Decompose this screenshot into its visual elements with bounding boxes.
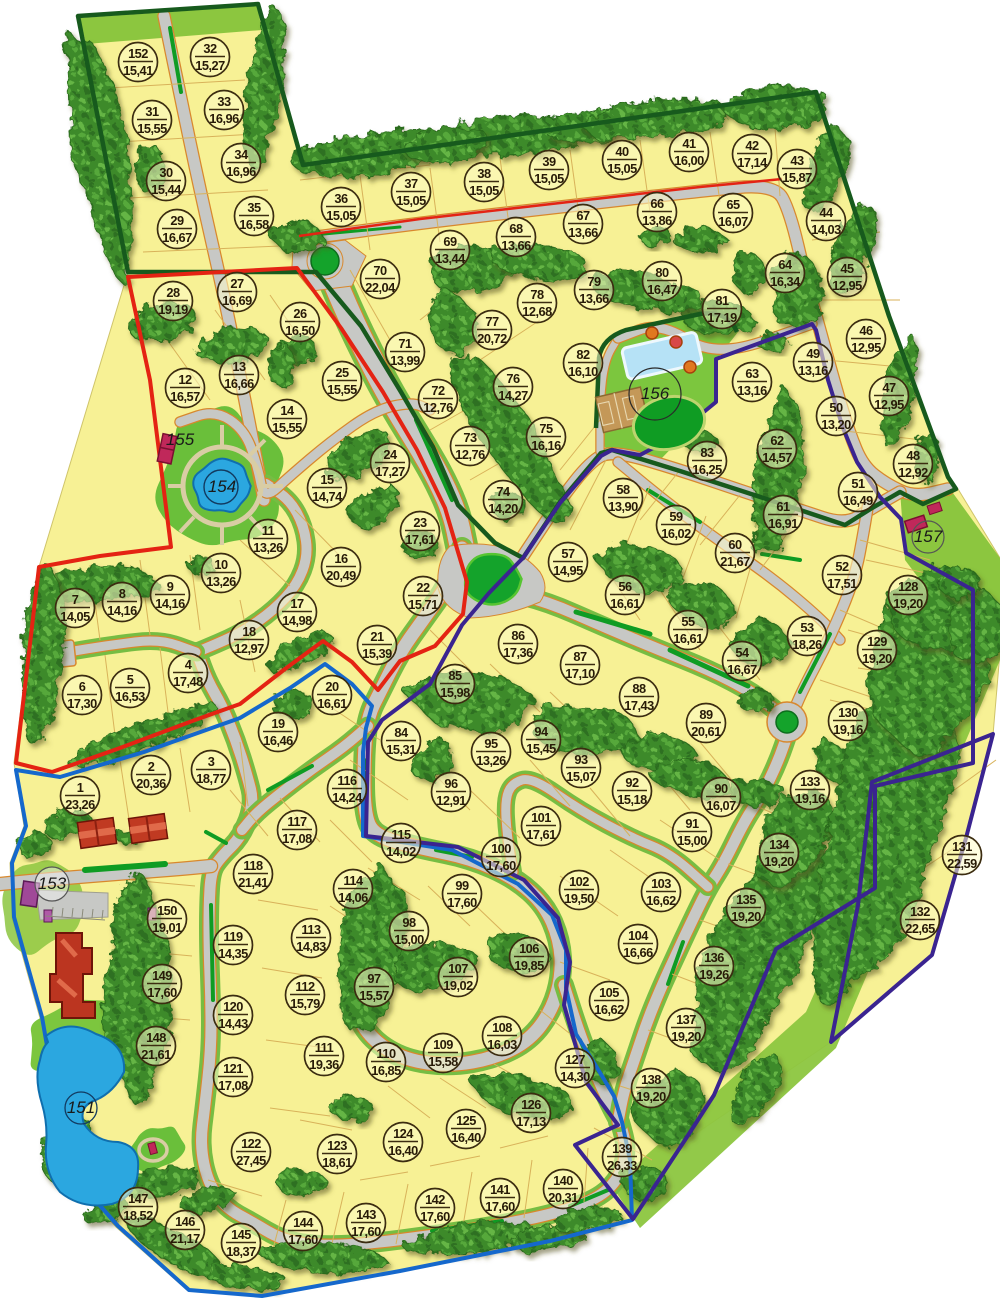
svg-text:22,65: 22,65: [905, 921, 935, 936]
svg-text:145: 145: [231, 1227, 251, 1242]
svg-text:16,61: 16,61: [610, 596, 640, 611]
svg-text:19,20: 19,20: [862, 651, 892, 666]
svg-text:19,50: 19,50: [564, 891, 594, 906]
svg-text:138: 138: [641, 1072, 661, 1087]
svg-text:15,05: 15,05: [534, 171, 564, 186]
svg-text:7: 7: [72, 592, 79, 607]
svg-text:13: 13: [232, 359, 246, 374]
svg-text:33: 33: [217, 94, 231, 109]
svg-text:114: 114: [343, 873, 364, 888]
svg-text:14,20: 14,20: [488, 501, 518, 516]
svg-text:90: 90: [714, 781, 728, 796]
svg-text:91: 91: [685, 816, 699, 831]
svg-text:135: 135: [736, 892, 756, 907]
svg-text:14,05: 14,05: [60, 609, 90, 624]
svg-text:131: 131: [952, 839, 972, 854]
svg-text:80: 80: [655, 265, 669, 280]
svg-text:12,95: 12,95: [874, 397, 904, 412]
svg-text:41: 41: [682, 136, 696, 151]
svg-text:87: 87: [573, 649, 587, 664]
svg-text:89: 89: [699, 707, 713, 722]
svg-text:14,16: 14,16: [107, 603, 137, 618]
svg-text:25: 25: [335, 365, 349, 380]
svg-text:21,17: 21,17: [170, 1231, 200, 1246]
svg-text:37: 37: [404, 176, 418, 191]
svg-text:42: 42: [745, 138, 759, 153]
svg-text:10: 10: [214, 557, 228, 572]
svg-text:6: 6: [79, 679, 86, 694]
svg-text:14,16: 14,16: [155, 596, 185, 611]
svg-text:18,37: 18,37: [226, 1244, 256, 1259]
svg-text:15,44: 15,44: [151, 182, 182, 197]
svg-text:20,49: 20,49: [326, 568, 356, 583]
svg-text:16,91: 16,91: [768, 516, 798, 531]
svg-text:9: 9: [167, 579, 174, 594]
svg-text:15,58: 15,58: [428, 1054, 458, 1069]
svg-text:15,18: 15,18: [617, 792, 647, 807]
svg-text:15,05: 15,05: [396, 193, 426, 208]
svg-text:93: 93: [574, 752, 588, 767]
svg-text:112: 112: [295, 979, 315, 994]
svg-text:26: 26: [293, 306, 307, 321]
svg-text:14,83: 14,83: [296, 939, 326, 954]
svg-text:78: 78: [530, 287, 544, 302]
svg-text:17,60: 17,60: [420, 1209, 450, 1224]
svg-text:21,61: 21,61: [141, 1047, 171, 1062]
svg-text:16,69: 16,69: [222, 293, 252, 308]
svg-text:16,50: 16,50: [285, 323, 315, 338]
svg-text:97: 97: [367, 971, 381, 986]
svg-text:19,02: 19,02: [443, 978, 473, 993]
svg-text:20,61: 20,61: [691, 724, 721, 739]
svg-text:12,97: 12,97: [234, 641, 264, 656]
svg-text:14,02: 14,02: [386, 844, 416, 859]
svg-text:53: 53: [800, 620, 814, 635]
svg-text:18,61: 18,61: [322, 1155, 352, 1170]
svg-text:75: 75: [539, 421, 553, 436]
svg-text:16,00: 16,00: [674, 153, 704, 168]
svg-text:50: 50: [829, 400, 843, 415]
svg-text:21,67: 21,67: [720, 554, 750, 569]
svg-text:17,60: 17,60: [447, 895, 477, 910]
svg-text:13,86: 13,86: [642, 213, 672, 228]
svg-text:16,16: 16,16: [531, 438, 561, 453]
svg-text:12,76: 12,76: [455, 447, 485, 462]
svg-text:17,08: 17,08: [282, 831, 312, 846]
svg-text:72: 72: [431, 383, 445, 398]
svg-text:124: 124: [393, 1126, 414, 1141]
svg-text:45: 45: [840, 261, 854, 276]
svg-text:16,10: 16,10: [568, 364, 598, 379]
svg-text:61: 61: [776, 499, 790, 514]
svg-text:16,34: 16,34: [770, 274, 801, 289]
svg-text:24: 24: [383, 447, 398, 462]
svg-text:15,00: 15,00: [677, 833, 707, 848]
svg-text:99: 99: [455, 878, 469, 893]
svg-text:142: 142: [425, 1192, 445, 1207]
svg-text:16,02: 16,02: [661, 526, 691, 541]
svg-text:19,85: 19,85: [514, 958, 544, 973]
svg-text:115: 115: [391, 827, 411, 842]
svg-text:122: 122: [241, 1136, 261, 1151]
svg-text:139: 139: [612, 1141, 632, 1156]
svg-text:56: 56: [618, 579, 632, 594]
svg-text:12,95: 12,95: [851, 340, 881, 355]
svg-text:129: 129: [867, 634, 887, 649]
svg-text:143: 143: [356, 1207, 376, 1222]
svg-text:102: 102: [569, 874, 589, 889]
svg-text:146: 146: [175, 1214, 195, 1229]
svg-text:14: 14: [280, 403, 295, 418]
svg-text:16,66: 16,66: [224, 376, 254, 391]
svg-text:16,07: 16,07: [718, 214, 748, 229]
svg-text:16,40: 16,40: [388, 1143, 418, 1158]
svg-text:69: 69: [443, 234, 457, 249]
svg-text:103: 103: [651, 876, 671, 891]
svg-text:46: 46: [859, 323, 873, 338]
svg-text:13,90: 13,90: [608, 499, 638, 514]
svg-text:19,20: 19,20: [636, 1089, 666, 1104]
svg-text:150: 150: [157, 903, 177, 918]
svg-text:5: 5: [127, 672, 134, 687]
svg-text:58: 58: [616, 482, 630, 497]
svg-text:23: 23: [413, 515, 427, 530]
svg-text:100: 100: [491, 841, 511, 856]
svg-text:30: 30: [159, 165, 173, 180]
svg-text:94: 94: [534, 724, 549, 739]
svg-text:18,77: 18,77: [196, 771, 226, 786]
svg-text:52: 52: [835, 559, 849, 574]
svg-text:15,45: 15,45: [526, 741, 556, 756]
svg-text:14,98: 14,98: [282, 613, 312, 628]
svg-text:85: 85: [448, 668, 462, 683]
svg-text:17,60: 17,60: [147, 985, 177, 1000]
svg-text:13,16: 13,16: [798, 363, 828, 378]
svg-text:19,16: 19,16: [795, 791, 825, 806]
svg-text:14,30: 14,30: [560, 1069, 590, 1084]
svg-text:16: 16: [334, 551, 348, 566]
svg-text:2: 2: [148, 759, 155, 774]
svg-text:16,96: 16,96: [209, 111, 239, 126]
svg-text:157: 157: [914, 527, 943, 546]
svg-text:16,61: 16,61: [317, 696, 347, 711]
svg-text:57: 57: [561, 546, 575, 561]
svg-text:16,58: 16,58: [239, 217, 269, 232]
svg-text:16,53: 16,53: [115, 689, 145, 704]
svg-text:77: 77: [485, 314, 499, 329]
svg-text:19,16: 19,16: [833, 722, 863, 737]
svg-text:23,26: 23,26: [65, 797, 95, 812]
svg-text:39: 39: [542, 154, 556, 169]
svg-text:20,72: 20,72: [477, 331, 507, 346]
svg-text:12,68: 12,68: [522, 304, 552, 319]
svg-text:126: 126: [521, 1097, 541, 1112]
svg-text:125: 125: [456, 1113, 476, 1128]
svg-text:16,46: 16,46: [263, 733, 293, 748]
svg-text:17,14: 17,14: [737, 155, 768, 170]
svg-text:17,10: 17,10: [565, 666, 595, 681]
svg-text:96: 96: [444, 776, 458, 791]
svg-text:13,26: 13,26: [476, 753, 506, 768]
svg-text:119: 119: [223, 929, 243, 944]
svg-text:110: 110: [376, 1046, 396, 1061]
svg-text:18,26: 18,26: [792, 637, 822, 652]
svg-text:15,05: 15,05: [469, 183, 499, 198]
svg-text:14,57: 14,57: [762, 450, 792, 465]
svg-text:13,66: 13,66: [579, 291, 609, 306]
svg-text:127: 127: [565, 1052, 585, 1067]
svg-text:19,01: 19,01: [152, 920, 182, 935]
svg-text:15: 15: [320, 472, 334, 487]
svg-text:55: 55: [681, 614, 695, 629]
svg-text:17,48: 17,48: [173, 674, 203, 689]
svg-text:54: 54: [735, 645, 750, 660]
svg-text:140: 140: [553, 1173, 573, 1188]
svg-text:137: 137: [676, 1012, 696, 1027]
svg-text:14,74: 14,74: [312, 489, 343, 504]
svg-text:15,07: 15,07: [566, 769, 596, 784]
svg-text:17: 17: [290, 596, 304, 611]
svg-text:16,40: 16,40: [451, 1130, 481, 1145]
svg-text:132: 132: [910, 904, 930, 919]
svg-text:16,49: 16,49: [843, 493, 873, 508]
svg-text:20,36: 20,36: [136, 776, 166, 791]
svg-text:17,13: 17,13: [516, 1114, 546, 1129]
svg-text:19,20: 19,20: [671, 1029, 701, 1044]
svg-text:13,99: 13,99: [390, 353, 420, 368]
svg-text:15,31: 15,31: [386, 742, 416, 757]
svg-text:13,26: 13,26: [206, 574, 236, 589]
svg-text:13,66: 13,66: [501, 238, 531, 253]
svg-text:38: 38: [477, 166, 491, 181]
svg-text:16,67: 16,67: [162, 230, 192, 245]
svg-text:19: 19: [271, 716, 285, 731]
svg-text:20,31: 20,31: [548, 1190, 578, 1205]
svg-text:121: 121: [223, 1061, 243, 1076]
svg-text:18,52: 18,52: [123, 1208, 153, 1223]
svg-text:108: 108: [492, 1020, 512, 1035]
svg-text:15,27: 15,27: [195, 58, 225, 73]
svg-text:20: 20: [325, 679, 339, 694]
svg-text:64: 64: [778, 257, 793, 272]
svg-text:82: 82: [576, 347, 590, 362]
svg-text:133: 133: [800, 774, 820, 789]
svg-text:16,07: 16,07: [706, 798, 736, 813]
svg-text:123: 123: [327, 1138, 347, 1153]
svg-text:98: 98: [402, 915, 416, 930]
svg-text:47: 47: [882, 380, 896, 395]
svg-text:16,62: 16,62: [594, 1002, 624, 1017]
svg-text:12: 12: [178, 372, 192, 387]
svg-text:14,24: 14,24: [332, 790, 363, 805]
svg-text:13,20: 13,20: [821, 417, 851, 432]
svg-text:74: 74: [496, 484, 511, 499]
svg-text:15,79: 15,79: [290, 996, 320, 1011]
svg-text:43: 43: [790, 153, 804, 168]
svg-text:153: 153: [38, 874, 67, 893]
svg-text:84: 84: [394, 725, 409, 740]
svg-text:34: 34: [234, 147, 249, 162]
svg-text:11: 11: [262, 523, 275, 538]
svg-text:106: 106: [519, 941, 539, 956]
svg-text:65: 65: [726, 197, 740, 212]
svg-text:154: 154: [208, 477, 236, 496]
svg-text:8: 8: [119, 586, 126, 601]
svg-text:21,41: 21,41: [238, 875, 268, 890]
svg-text:19,20: 19,20: [893, 596, 923, 611]
svg-text:15,55: 15,55: [272, 420, 302, 435]
svg-text:28: 28: [166, 285, 180, 300]
svg-text:22,59: 22,59: [947, 856, 977, 871]
svg-text:16,66: 16,66: [623, 945, 653, 960]
svg-text:16,03: 16,03: [487, 1037, 517, 1052]
svg-text:13,44: 13,44: [435, 251, 466, 266]
svg-text:70: 70: [373, 263, 387, 278]
svg-text:12,92: 12,92: [898, 465, 928, 480]
svg-text:19,36: 19,36: [309, 1057, 339, 1072]
svg-text:49: 49: [806, 346, 820, 361]
svg-text:117: 117: [287, 814, 307, 829]
svg-text:17,51: 17,51: [827, 576, 857, 591]
svg-text:51: 51: [851, 476, 865, 491]
svg-text:111: 111: [315, 1040, 334, 1055]
svg-text:15,98: 15,98: [440, 685, 470, 700]
svg-text:31: 31: [145, 104, 159, 119]
svg-text:120: 120: [223, 999, 243, 1014]
svg-text:12,91: 12,91: [436, 793, 466, 808]
svg-text:59: 59: [669, 509, 683, 524]
svg-text:83: 83: [700, 445, 714, 460]
svg-text:21: 21: [370, 629, 384, 644]
svg-text:151: 151: [67, 1098, 95, 1117]
svg-text:19,19: 19,19: [158, 302, 188, 317]
svg-text:15,71: 15,71: [408, 597, 438, 612]
svg-text:40: 40: [615, 144, 629, 159]
svg-text:18: 18: [242, 624, 256, 639]
svg-text:14,43: 14,43: [218, 1016, 248, 1031]
svg-text:13,66: 13,66: [568, 225, 598, 240]
svg-text:26,33: 26,33: [607, 1158, 637, 1173]
svg-text:17,30: 17,30: [67, 696, 97, 711]
svg-text:19,20: 19,20: [731, 909, 761, 924]
svg-text:147: 147: [128, 1191, 148, 1206]
svg-text:17,61: 17,61: [526, 827, 556, 842]
svg-text:101: 101: [531, 810, 551, 825]
svg-text:15,05: 15,05: [607, 161, 637, 176]
svg-text:48: 48: [906, 448, 920, 463]
svg-text:16,47: 16,47: [647, 282, 677, 297]
svg-text:32: 32: [203, 41, 217, 56]
svg-text:15,55: 15,55: [327, 382, 357, 397]
svg-text:17,19: 17,19: [707, 310, 737, 325]
svg-text:17,27: 17,27: [375, 464, 405, 479]
svg-text:113: 113: [301, 922, 321, 937]
svg-text:81: 81: [715, 293, 729, 308]
svg-text:95: 95: [484, 736, 498, 751]
svg-text:15,55: 15,55: [137, 121, 167, 136]
svg-text:22: 22: [416, 580, 430, 595]
svg-text:92: 92: [625, 775, 639, 790]
svg-text:27,45: 27,45: [236, 1153, 266, 1168]
svg-text:144: 144: [293, 1215, 314, 1230]
svg-text:17,60: 17,60: [485, 1199, 515, 1214]
svg-text:152: 152: [128, 46, 148, 61]
svg-text:16,57: 16,57: [170, 389, 200, 404]
svg-text:17,36: 17,36: [503, 645, 533, 660]
svg-text:12,95: 12,95: [832, 278, 862, 293]
svg-text:29: 29: [170, 213, 184, 228]
svg-text:67: 67: [576, 208, 590, 223]
svg-text:109: 109: [433, 1037, 453, 1052]
svg-text:17,60: 17,60: [351, 1224, 381, 1239]
svg-text:17,60: 17,60: [486, 858, 516, 873]
svg-text:14,03: 14,03: [811, 222, 841, 237]
svg-text:44: 44: [819, 205, 834, 220]
svg-text:15,41: 15,41: [123, 63, 153, 78]
svg-text:16,96: 16,96: [226, 164, 256, 179]
svg-text:19,26: 19,26: [699, 967, 729, 982]
svg-text:104: 104: [628, 928, 649, 943]
svg-text:17,08: 17,08: [218, 1078, 248, 1093]
svg-text:14,95: 14,95: [553, 563, 583, 578]
svg-text:17,43: 17,43: [624, 698, 654, 713]
svg-text:15,39: 15,39: [362, 646, 392, 661]
svg-text:16,25: 16,25: [692, 462, 722, 477]
svg-text:12,76: 12,76: [423, 400, 453, 415]
svg-text:62: 62: [770, 433, 784, 448]
svg-text:17,60: 17,60: [288, 1232, 318, 1247]
svg-text:1: 1: [77, 780, 84, 795]
svg-text:136: 136: [704, 950, 724, 965]
svg-text:27: 27: [230, 276, 244, 291]
svg-text:71: 71: [398, 336, 412, 351]
svg-text:15,57: 15,57: [359, 988, 389, 1003]
svg-text:36: 36: [334, 191, 348, 206]
svg-text:16,61: 16,61: [673, 631, 703, 646]
svg-text:13,26: 13,26: [253, 540, 283, 555]
svg-text:86: 86: [511, 628, 525, 643]
svg-text:149: 149: [152, 968, 172, 983]
svg-text:16,62: 16,62: [646, 893, 676, 908]
svg-text:118: 118: [243, 858, 263, 873]
svg-text:73: 73: [463, 430, 477, 445]
svg-text:107: 107: [448, 961, 468, 976]
svg-text:16,85: 16,85: [371, 1063, 401, 1078]
svg-text:79: 79: [587, 274, 601, 289]
svg-text:76: 76: [506, 371, 520, 386]
svg-text:130: 130: [838, 705, 858, 720]
svg-text:116: 116: [337, 773, 357, 788]
svg-text:15,87: 15,87: [782, 170, 812, 185]
svg-text:155: 155: [166, 430, 195, 449]
svg-text:14,35: 14,35: [218, 946, 248, 961]
svg-text:17,61: 17,61: [405, 532, 435, 547]
svg-text:35: 35: [247, 200, 261, 215]
svg-text:105: 105: [599, 985, 619, 1000]
svg-text:68: 68: [509, 221, 523, 236]
svg-text:15,00: 15,00: [394, 932, 424, 947]
svg-text:63: 63: [745, 366, 759, 381]
svg-text:141: 141: [490, 1182, 510, 1197]
svg-text:128: 128: [898, 579, 918, 594]
svg-text:14,06: 14,06: [338, 890, 368, 905]
svg-text:14,27: 14,27: [498, 388, 528, 403]
svg-text:13,16: 13,16: [737, 383, 767, 398]
svg-text:148: 148: [146, 1030, 166, 1045]
svg-text:15,05: 15,05: [326, 208, 356, 223]
svg-text:60: 60: [728, 537, 742, 552]
svg-text:3: 3: [208, 754, 215, 769]
